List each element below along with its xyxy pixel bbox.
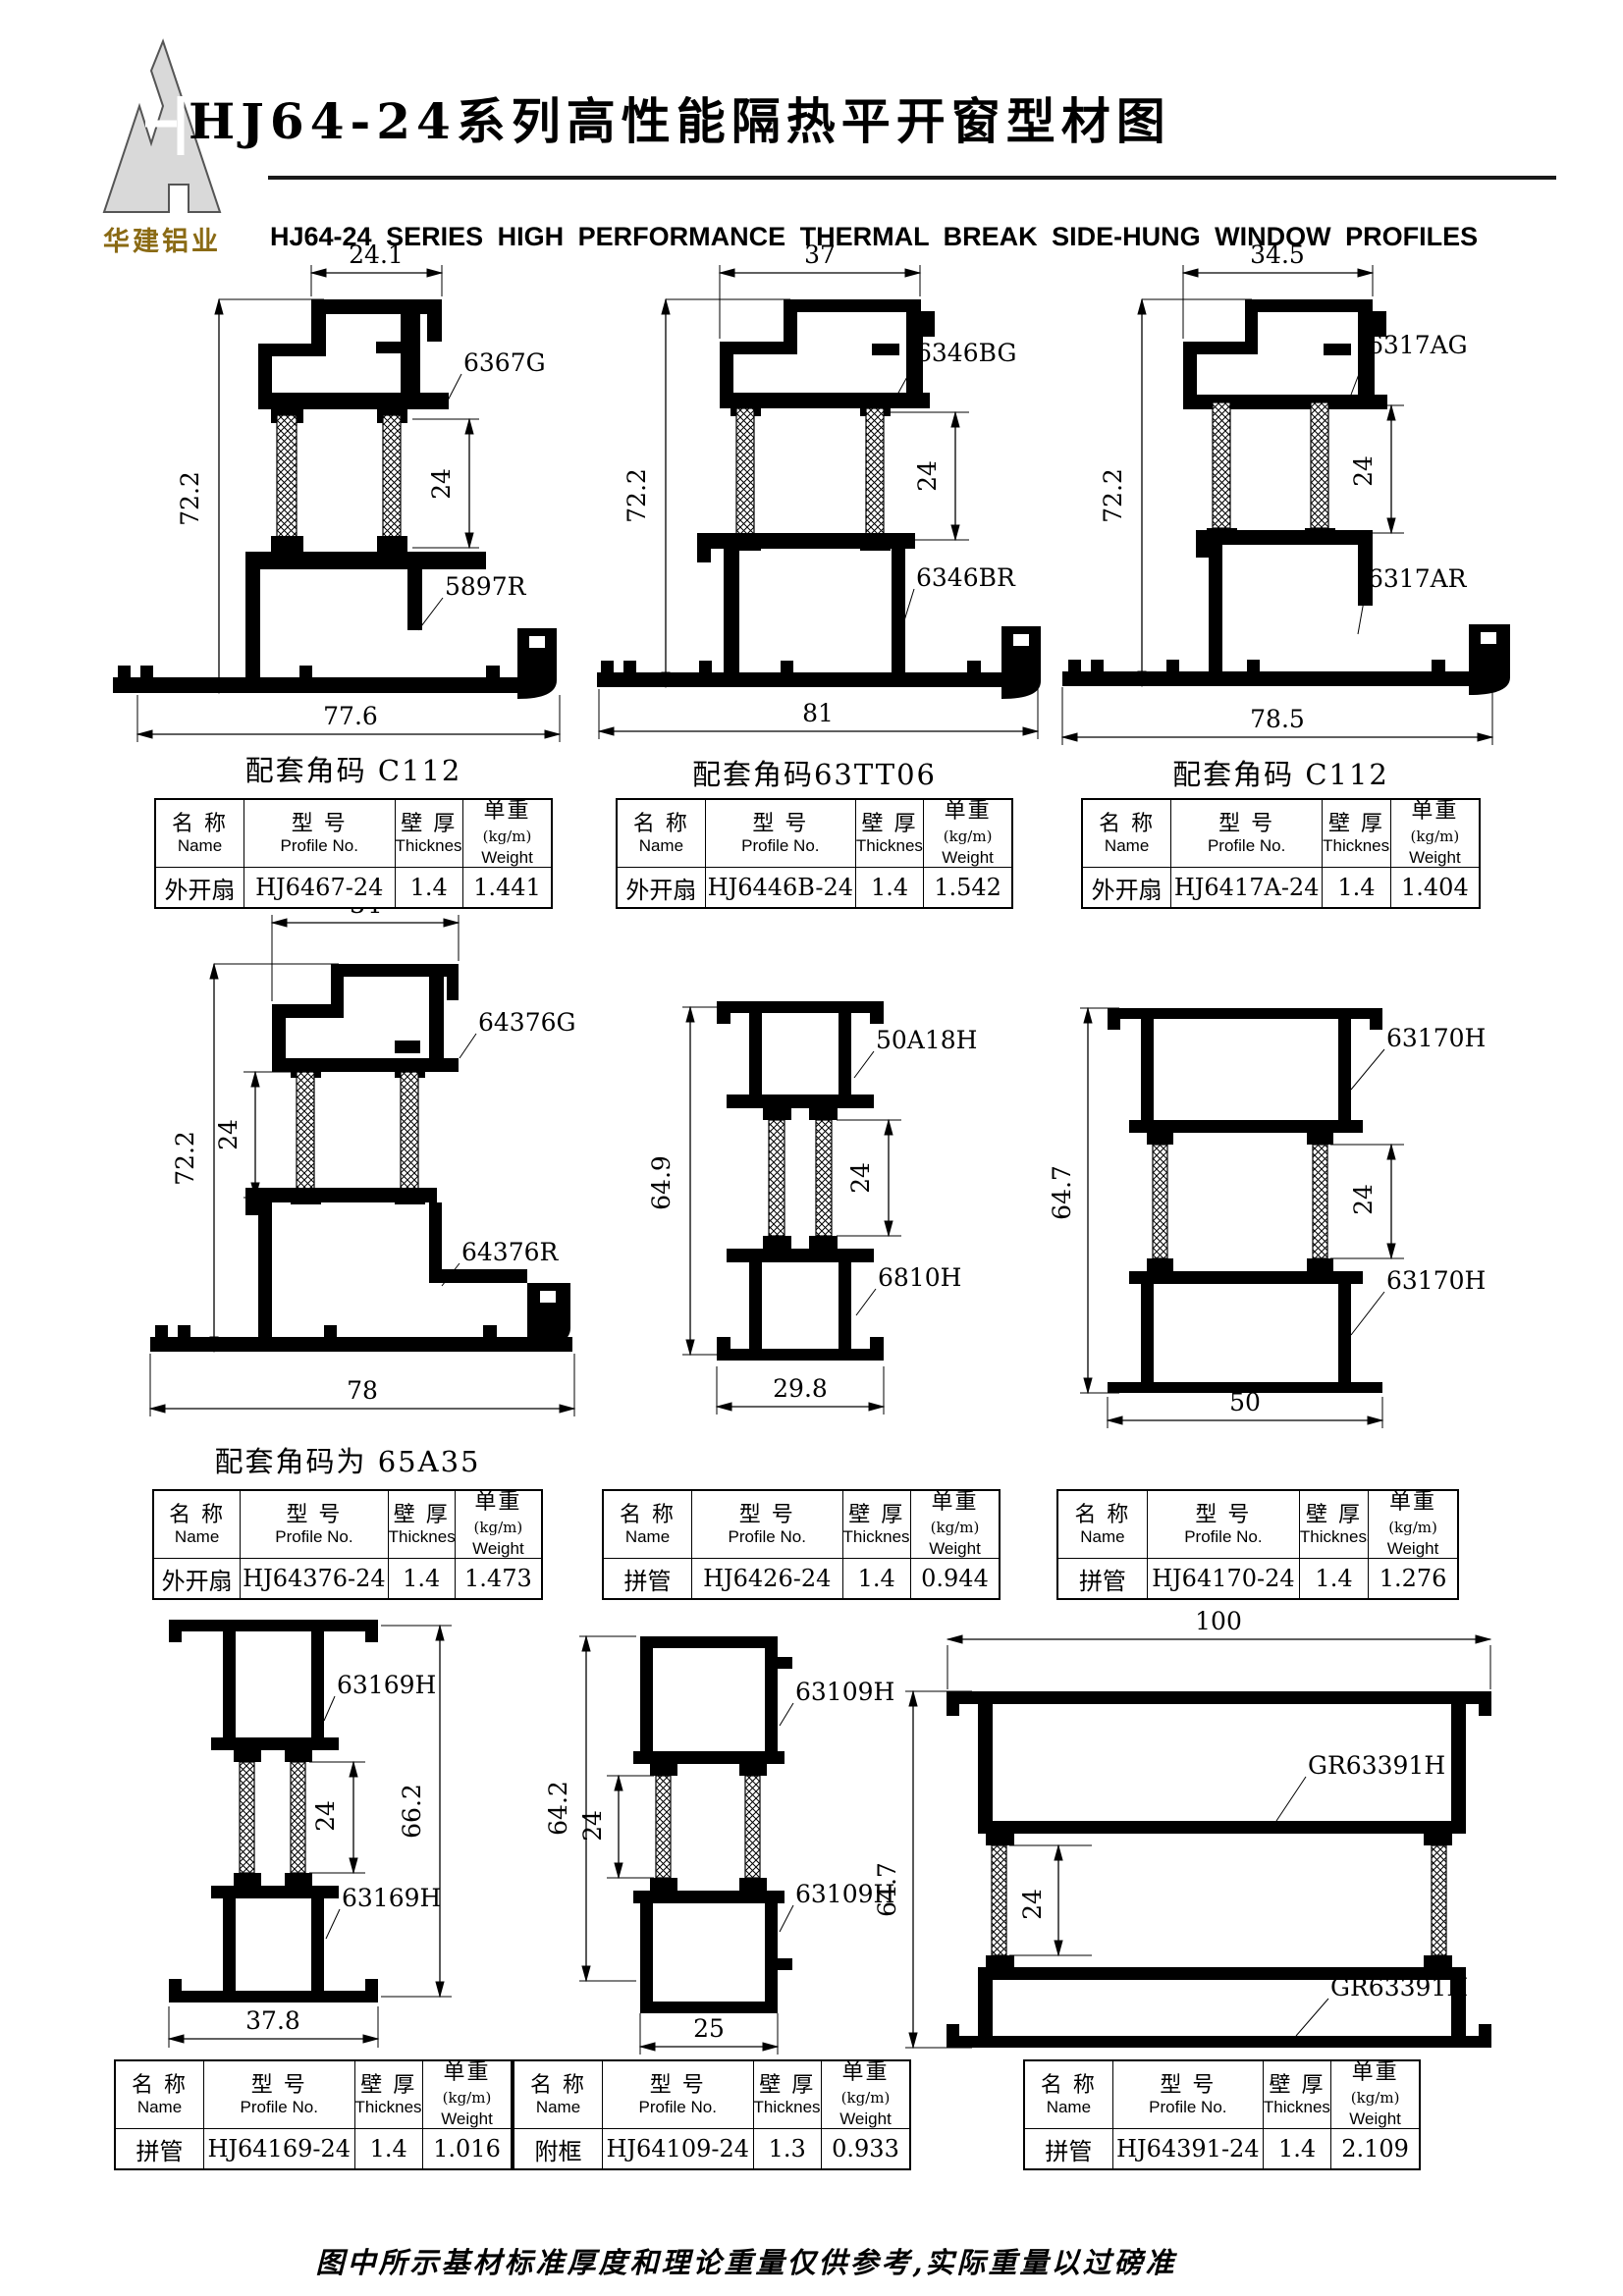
dim-bottom: 78 xyxy=(347,1376,378,1405)
dim-glass: 24 xyxy=(913,460,942,492)
dim-glass: 24 xyxy=(1349,455,1378,487)
part-label-top: 50A18H xyxy=(876,1026,977,1054)
cell-weight: 2.109 xyxy=(1331,2129,1420,2170)
cell-thickness: 1.4 xyxy=(842,1559,910,1600)
part-label-top: 63170H xyxy=(1386,1024,1486,1052)
col-name: 名 称Name xyxy=(514,2060,602,2129)
part-label-top: 6367G xyxy=(463,348,546,377)
spec-table-1: 名 称Name 型 号Profile No. 壁 厚Thickness 单重(k… xyxy=(154,798,553,909)
dim-top: 24.1 xyxy=(349,240,404,269)
page-title: HJ64-24系列高性能隔热平开窗型材图 xyxy=(189,82,1171,153)
cell-profile: HJ64109-24 xyxy=(602,2129,753,2170)
dim-height: 72.2 xyxy=(1099,468,1127,523)
spec-table-3: 名 称Name 型 号Profile No. 壁 厚Thickness 单重(k… xyxy=(1081,798,1481,909)
col-name: 名 称Name xyxy=(1082,799,1171,868)
title-divider xyxy=(268,176,1556,180)
col-weight: 单重(kg/m)Weight xyxy=(910,1490,1000,1559)
part-label-bottom: 6317AR xyxy=(1368,564,1468,593)
dim-glass: 24 xyxy=(578,1810,607,1842)
col-profile: 型 号Profile No. xyxy=(1147,1490,1299,1559)
dim-height: 64.7 xyxy=(873,1862,901,1917)
cell-thickness: 1.4 xyxy=(388,1559,455,1600)
part-label-bottom: GR63391H xyxy=(1330,1973,1468,2002)
part-labels: 63170H 63170H xyxy=(1351,1024,1486,1335)
col-name: 名 称Name xyxy=(603,1490,691,1559)
profile-drawing-5: 64.9 24 29.8 50A18H 6810H xyxy=(609,942,1080,1433)
col-profile: 型 号Profile No. xyxy=(1171,799,1323,868)
col-thickness: 壁 厚Thickness xyxy=(395,799,462,868)
profile-drawing-4: 34 72.2 24 78 64 xyxy=(98,864,599,1443)
cell-name: 外开扇 xyxy=(1082,868,1171,909)
cell-profile: HJ6446B-24 xyxy=(705,868,855,909)
part-label-top: 64376G xyxy=(478,1008,576,1037)
col-weight: 单重(kg/m)Weight xyxy=(924,799,1012,868)
cell-weight: 1.016 xyxy=(422,2129,512,2170)
dim-bottom: 37.8 xyxy=(245,2006,300,2035)
dim-bottom: 81 xyxy=(802,699,834,727)
col-thickness: 壁 厚Thickness xyxy=(354,2060,422,2129)
col-weight: 单重(kg/m)Weight xyxy=(1390,799,1480,868)
cell-name: 拼管 xyxy=(115,2129,203,2170)
col-thickness: 壁 厚Thickness xyxy=(753,2060,821,2129)
dim-height: 72.2 xyxy=(176,471,204,526)
caption-3: 配套角码 C112 xyxy=(1081,752,1481,793)
col-name: 名 称Name xyxy=(1024,2060,1112,2129)
dim-bottom: 77.6 xyxy=(323,702,378,730)
dim-bottom: 25 xyxy=(693,2014,725,2043)
cell-thickness: 1.4 xyxy=(1263,2129,1330,2170)
part-labels: 64376G 64376R xyxy=(442,1008,576,1286)
col-weight: 单重(kg/m)Weight xyxy=(455,1490,542,1559)
profile-shape xyxy=(1108,1008,1382,1393)
spec-table-9: 名 称Name 型 号Profile No. 壁 厚Thickness 单重(k… xyxy=(1023,2059,1421,2170)
cell-name: 附框 xyxy=(514,2129,602,2170)
col-profile: 型 号Profile No. xyxy=(602,2060,753,2129)
col-profile: 型 号Profile No. xyxy=(241,1490,388,1559)
dim-bottom: 29.8 xyxy=(773,1374,828,1403)
table-row: 外开扇 HJ6417A-24 1.4 1.404 xyxy=(1082,868,1480,909)
caption-1: 配套角码 C112 xyxy=(154,748,553,789)
col-weight: 单重(kg/m)Weight xyxy=(422,2060,512,2129)
dim-glass: 24 xyxy=(214,1119,243,1150)
part-label-top: GR63391H xyxy=(1308,1751,1445,1780)
col-thickness: 壁 厚Thickness xyxy=(1299,1490,1368,1559)
part-label-top: 6346BG xyxy=(916,339,1016,367)
col-weight: 单重(kg/m)Weight xyxy=(1331,2060,1420,2129)
col-thickness: 壁 厚Thickness xyxy=(1263,2060,1330,2129)
cell-weight: 1.441 xyxy=(462,868,552,909)
cell-profile: HJ64169-24 xyxy=(203,2129,354,2170)
dim-glass: 24 xyxy=(1349,1184,1378,1215)
dim-height: 72.2 xyxy=(622,468,651,523)
part-label-bottom: 63170H xyxy=(1386,1266,1486,1295)
cell-profile: HJ64391-24 xyxy=(1112,2129,1263,2170)
caption-2: 配套角码63TT06 xyxy=(616,752,1013,793)
cell-weight: 0.944 xyxy=(910,1559,1000,1600)
cell-thickness: 1.3 xyxy=(753,2129,821,2170)
col-name: 名 称Name xyxy=(1057,1490,1147,1559)
dim-glass: 24 xyxy=(311,1800,340,1832)
col-thickness: 壁 厚Thickness xyxy=(842,1490,910,1559)
col-weight: 单重(kg/m)Weight xyxy=(1369,1490,1458,1559)
cell-name: 拼管 xyxy=(1057,1559,1147,1600)
dim-glass: 24 xyxy=(427,468,456,500)
table-row: 拼管 HJ64391-24 1.4 2.109 xyxy=(1024,2129,1420,2170)
spec-table-6: 名 称Name 型 号Profile No. 壁 厚Thickness 单重(k… xyxy=(1056,1489,1459,1600)
col-name: 名 称Name xyxy=(115,2060,203,2129)
dim-height: 64.2 xyxy=(544,1781,572,1836)
table-row: 外开扇 HJ64376-24 1.4 1.473 xyxy=(153,1559,542,1600)
col-name: 名 称Name xyxy=(155,799,243,868)
dim-height: 72.2 xyxy=(171,1131,199,1186)
cell-name: 外开扇 xyxy=(155,868,243,909)
dimension-lines: 34.5 72.2 24 78.5 xyxy=(1062,240,1492,745)
profile-drawing-6: 64.7 24 50 63170H 63170H xyxy=(1060,942,1591,1443)
profile-drawing-1: 24.1 72.2 24 77.6 6367G xyxy=(88,245,579,751)
dim-glass: 24 xyxy=(846,1162,875,1194)
col-profile: 型 号Profile No. xyxy=(1112,2060,1263,2129)
part-label-bottom: 6810H xyxy=(878,1263,961,1292)
dim-height: 64.7 xyxy=(1048,1165,1076,1220)
dim-top: 34.5 xyxy=(1250,240,1305,269)
dim-top: 100 xyxy=(1195,1607,1242,1635)
cell-name: 外开扇 xyxy=(153,1559,241,1600)
dim-bottom: 78.5 xyxy=(1250,705,1305,733)
part-label-bottom: 64376R xyxy=(461,1238,560,1266)
table-row: 外开扇 HJ6467-24 1.4 1.441 xyxy=(155,868,552,909)
cell-weight: 0.933 xyxy=(821,2129,910,2170)
cell-name: 拼管 xyxy=(603,1559,691,1600)
profile-drawing-9: 100 64.7 24 GR63391H GR63391H xyxy=(884,1595,1615,2086)
profile-drawing-3: 34.5 72.2 24 78.5 xyxy=(1060,245,1591,756)
cell-weight: 1.276 xyxy=(1369,1559,1458,1600)
cell-profile: HJ64376-24 xyxy=(241,1559,388,1600)
part-label-bottom: 5897R xyxy=(445,572,527,601)
spec-table-5: 名 称Name 型 号Profile No. 壁 厚Thickness 单重(k… xyxy=(602,1489,1001,1600)
cell-thickness: 1.4 xyxy=(1323,868,1391,909)
part-label-top: 63109H xyxy=(795,1678,894,1706)
table-row: 拼管 HJ6426-24 1.4 0.944 xyxy=(603,1559,1000,1600)
cell-profile: HJ64170-24 xyxy=(1147,1559,1299,1600)
profile-drawing-2: 37 72.2 24 81 63 xyxy=(589,245,1100,751)
dim-glass: 24 xyxy=(1018,1889,1047,1920)
col-profile: 型 号Profile No. xyxy=(243,799,395,868)
cell-name: 拼管 xyxy=(1024,2129,1112,2170)
col-profile: 型 号Profile No. xyxy=(203,2060,354,2129)
footer-note: 图中所示基材标准厚度和理论重量仅供参考,实际重量以过磅准 xyxy=(128,2240,1365,2281)
profile-drawing-8: 64.2 24 25 63109H 63109H xyxy=(412,1620,903,2091)
cell-name: 外开扇 xyxy=(617,868,705,909)
col-weight: 单重(kg/m)Weight xyxy=(821,2060,910,2129)
spec-table-7: 名 称Name 型 号Profile No. 壁 厚Thickness 单重(k… xyxy=(114,2059,513,2170)
cell-profile: HJ6426-24 xyxy=(691,1559,842,1600)
cell-thickness: 1.4 xyxy=(855,868,923,909)
col-profile: 型 号Profile No. xyxy=(705,799,855,868)
cell-profile: HJ6467-24 xyxy=(243,868,395,909)
col-thickness: 壁 厚Thickness xyxy=(1323,799,1391,868)
col-name: 名 称Name xyxy=(617,799,705,868)
table-row: 附框 HJ64109-24 1.3 0.933 xyxy=(514,2129,910,2170)
cell-weight: 1.473 xyxy=(455,1559,542,1600)
part-label-top: 6317AG xyxy=(1368,331,1468,359)
col-thickness: 壁 厚Thickness xyxy=(855,799,923,868)
part-label-bottom: 6346BR xyxy=(916,563,1016,592)
cell-thickness: 1.4 xyxy=(1299,1559,1368,1600)
table-row: 外开扇 HJ6446B-24 1.4 1.542 xyxy=(617,868,1012,909)
col-profile: 型 号Profile No. xyxy=(691,1490,842,1559)
col-name: 名 称Name xyxy=(153,1490,241,1559)
cell-thickness: 1.4 xyxy=(395,868,462,909)
cell-weight: 1.542 xyxy=(924,868,1012,909)
spec-table-4: 名 称Name 型 号Profile No. 壁 厚Thickness 单重(k… xyxy=(152,1489,543,1600)
spec-table-2: 名 称Name 型 号Profile No. 壁 厚Thickness 单重(k… xyxy=(616,798,1013,909)
drawing-sheet: 华建铝业 HJ64-24系列高性能隔热平开窗型材图 HJ64-24 SERIES… xyxy=(0,0,1623,2296)
table-row: 拼管 HJ64170-24 1.4 1.276 xyxy=(1057,1559,1458,1600)
dim-height: 64.9 xyxy=(647,1155,676,1210)
cell-thickness: 1.4 xyxy=(354,2129,422,2170)
spec-table-8: 名 称Name 型 号Profile No. 壁 厚Thickness 单重(k… xyxy=(513,2059,911,2170)
cell-profile: HJ6417A-24 xyxy=(1171,868,1323,909)
table-row: 拼管 HJ64169-24 1.4 1.016 xyxy=(115,2129,512,2170)
col-thickness: 壁 厚Thickness xyxy=(388,1490,455,1559)
cell-weight: 1.404 xyxy=(1390,868,1480,909)
caption-4: 配套角码为 65A35 xyxy=(152,1439,543,1480)
profile-shape xyxy=(633,1636,792,2013)
col-weight: 单重(kg/m)Weight xyxy=(462,799,552,868)
dim-top: 37 xyxy=(804,240,836,269)
